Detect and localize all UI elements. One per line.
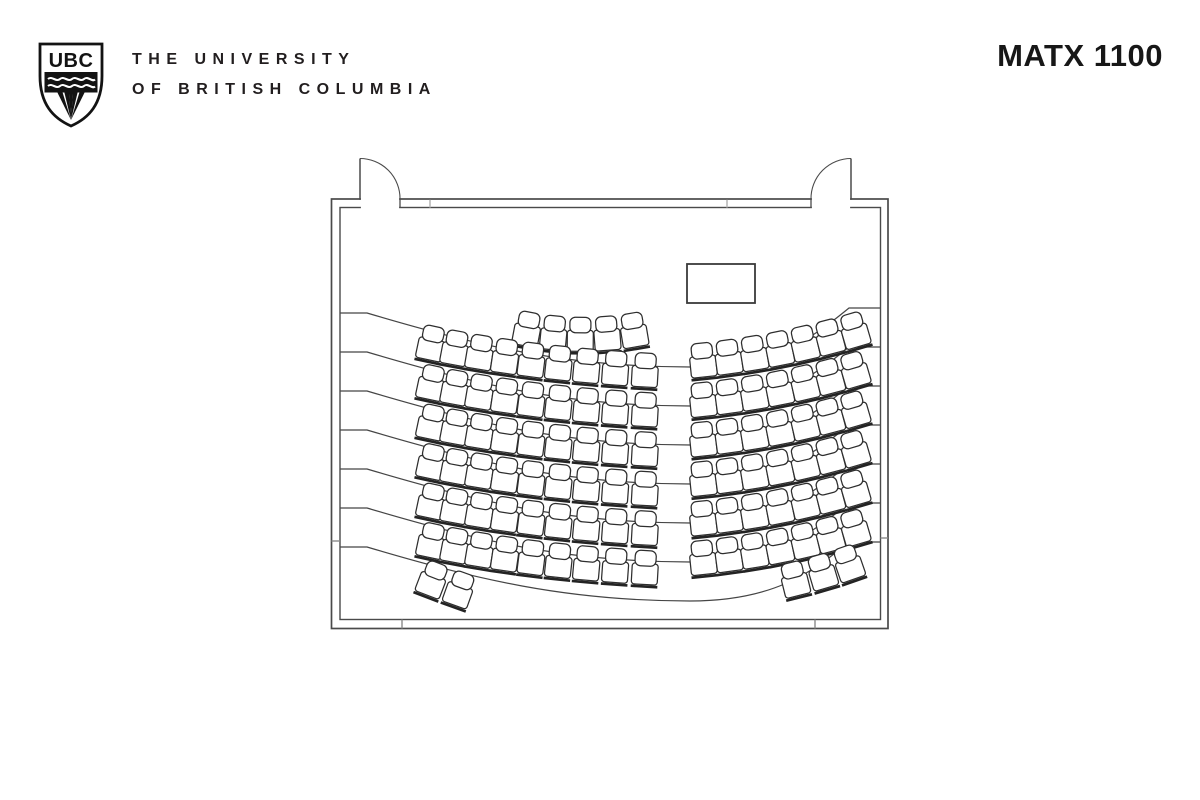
page: UBC THE UNIVERSITY OF BRITISH COLUMBIA M… (0, 0, 1200, 800)
seat (631, 392, 660, 429)
seat (572, 466, 602, 504)
seat (544, 503, 574, 542)
seat (567, 317, 594, 353)
seat (601, 350, 630, 388)
seat (572, 506, 602, 544)
seat (713, 338, 744, 377)
seat (601, 508, 630, 546)
seat (688, 381, 718, 420)
door-opening (361, 197, 399, 209)
seat (738, 492, 770, 532)
seat (738, 532, 770, 572)
seat (490, 495, 522, 534)
seat (516, 539, 547, 578)
seating (413, 310, 872, 612)
seat (516, 381, 547, 420)
university-name-line2: OF BRITISH COLUMBIA (132, 75, 437, 105)
seat (516, 460, 547, 499)
floorplan-svg (0, 0, 1200, 800)
seat (572, 387, 602, 425)
seat (592, 315, 621, 353)
seat (713, 496, 744, 535)
seat (713, 378, 744, 417)
seat (738, 413, 770, 453)
seat (490, 456, 522, 495)
ubc-crest-logo: UBC (38, 42, 104, 128)
seat (572, 427, 602, 465)
seat (601, 469, 630, 507)
lectern-table (687, 264, 755, 303)
seat (490, 337, 522, 376)
university-name: THE UNIVERSITY OF BRITISH COLUMBIA (132, 45, 437, 105)
door-swing-arc (360, 159, 400, 200)
seat (688, 342, 718, 381)
seat (601, 429, 630, 467)
seat (738, 374, 770, 414)
seat (713, 457, 744, 496)
seat (618, 311, 650, 351)
seat (738, 334, 770, 374)
seat (601, 548, 630, 586)
seat (738, 453, 770, 493)
seat (713, 417, 744, 456)
room-label: MATX 1100 (997, 38, 1163, 74)
seat (713, 536, 744, 575)
seat (516, 499, 547, 538)
ubc-shield-icon: UBC (38, 42, 104, 128)
seat (688, 460, 718, 499)
seat (572, 545, 602, 583)
seat (688, 500, 718, 539)
university-name-line1: THE UNIVERSITY (132, 45, 437, 75)
seat (544, 542, 574, 581)
seat (544, 424, 574, 463)
seat (516, 420, 547, 459)
seat (601, 390, 630, 428)
seat (688, 421, 718, 460)
seat (631, 471, 660, 508)
crest-text: UBC (49, 50, 94, 72)
door-swing-arc (811, 159, 851, 200)
seat (631, 431, 660, 468)
seat (688, 539, 718, 578)
seat (631, 550, 660, 587)
door-opening (812, 197, 850, 209)
seat (631, 352, 660, 389)
seat (490, 416, 522, 455)
seat (490, 377, 522, 416)
seat (544, 463, 574, 502)
seat (544, 384, 574, 423)
seat (631, 510, 660, 547)
seat (777, 559, 812, 600)
